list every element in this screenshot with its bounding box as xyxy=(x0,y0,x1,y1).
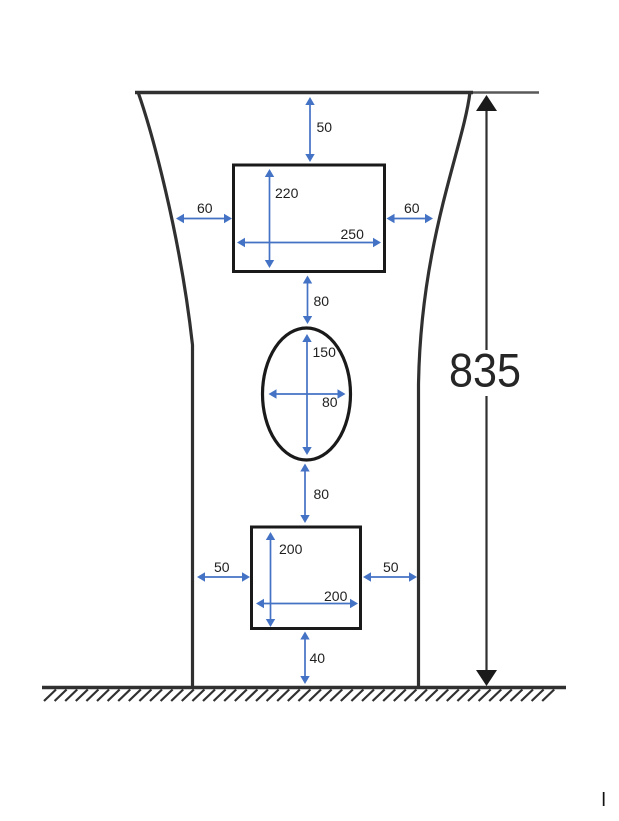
svg-text:250: 250 xyxy=(341,226,365,242)
svg-text:50: 50 xyxy=(317,119,333,135)
svg-text:40: 40 xyxy=(310,650,326,666)
svg-text:50: 50 xyxy=(383,559,399,575)
svg-text:80: 80 xyxy=(314,486,330,502)
svg-text:80: 80 xyxy=(322,394,338,410)
svg-text:200: 200 xyxy=(324,588,348,604)
svg-text:60: 60 xyxy=(404,200,420,216)
svg-text:50: 50 xyxy=(214,559,230,575)
svg-text:60: 60 xyxy=(197,200,213,216)
svg-text:80: 80 xyxy=(314,293,330,309)
svg-text:835: 835 xyxy=(449,344,521,397)
svg-text:150: 150 xyxy=(313,344,337,360)
svg-text:200: 200 xyxy=(279,541,303,557)
svg-text:220: 220 xyxy=(275,185,299,201)
